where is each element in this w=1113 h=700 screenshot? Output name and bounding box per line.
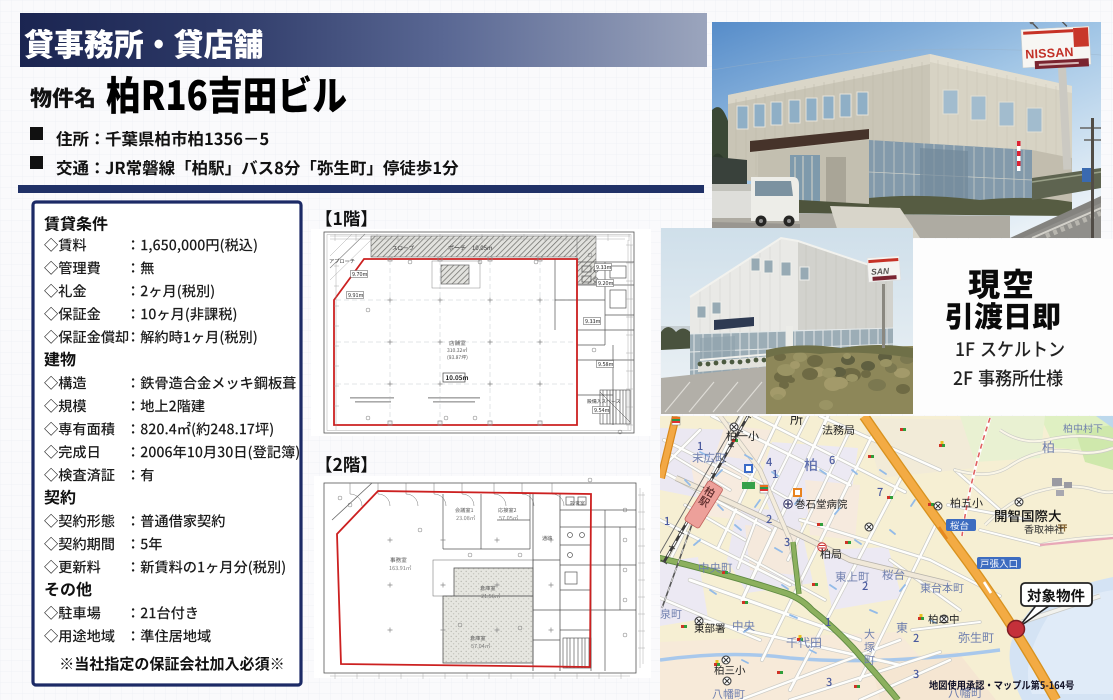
svg-text:SAN: SAN <box>871 266 890 277</box>
svg-text:NISSAN: NISSAN <box>1025 45 1074 62</box>
